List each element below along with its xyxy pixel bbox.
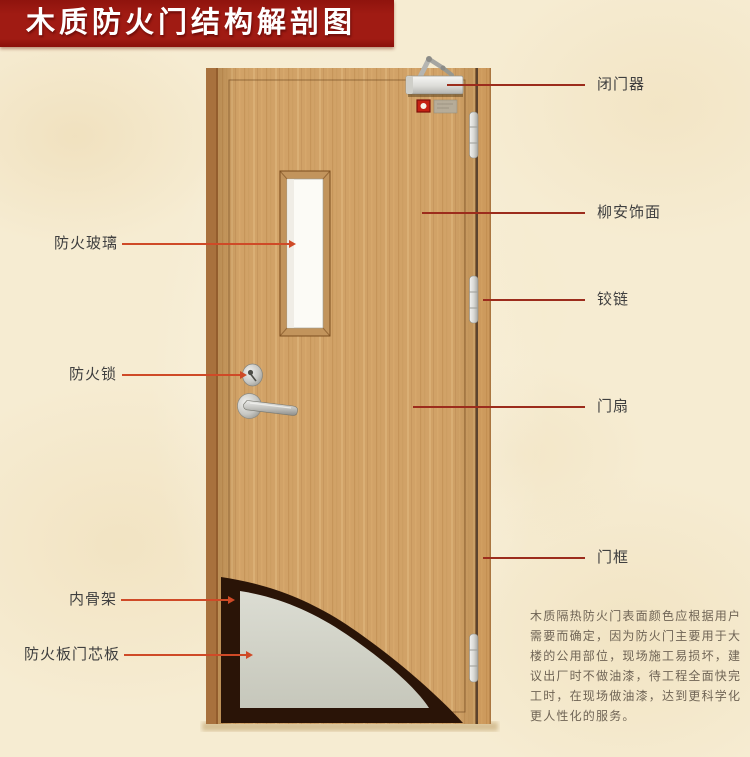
description-line: 木质隔热防火门表面颜色应根据用户 (530, 606, 742, 626)
page-title: 木质防火门结构解剖图 (0, 0, 394, 47)
callout-label-core-board: 防火板门芯板 (24, 646, 120, 664)
door-left-edge (206, 68, 218, 724)
label-plate (434, 100, 457, 113)
description-line: 需要而确定，因为防火门主要用于大 (530, 626, 742, 646)
description-paragraph: 木质隔热防火门表面颜色应根据用户 需要而确定，因为防火门主要用于大 楼的公用部位… (530, 606, 742, 726)
callout-line-veneer (422, 212, 585, 214)
callout-label-door-closer: 闭门器 (597, 76, 645, 94)
hinge-bottom (470, 634, 479, 682)
callout-line-hinge (483, 299, 585, 301)
callout-label-fire-lock: 防火锁 (69, 366, 117, 384)
callout-line-fire-glass (122, 243, 290, 245)
callout-line-door-frame (483, 557, 585, 559)
callout-label-veneer: 柳安饰面 (597, 204, 661, 222)
door-frame-strip (478, 68, 491, 724)
alarm-indicator (417, 100, 430, 112)
description-line: 工时，在现场做油漆，达到更科学化 (530, 686, 742, 706)
callout-label-inner-skeleton: 内骨架 (69, 591, 117, 609)
callout-label-fire-glass: 防火玻璃 (54, 235, 118, 253)
fire-glass-window (280, 171, 330, 336)
callout-label-hinge: 铰链 (597, 291, 629, 309)
callout-line-fire-lock (122, 374, 241, 376)
door-illustration (200, 50, 500, 740)
description-line: 更人性化的服务。 (530, 706, 742, 726)
callout-label-door-leaf: 门扇 (597, 398, 629, 416)
door-gap (476, 68, 479, 724)
callout-line-door-closer (447, 84, 585, 86)
hinge-top (470, 112, 479, 158)
callout-line-door-leaf (413, 406, 585, 408)
callout-label-door-frame: 门框 (597, 549, 629, 567)
callout-line-inner-skeleton (121, 599, 229, 601)
description-line: 楼的公用部位，现场施工易损坏，建 (530, 646, 742, 666)
callout-line-core-board (124, 654, 247, 656)
hinge-middle (470, 276, 479, 323)
title-banner: 木质防火门结构解剖图 (0, 0, 394, 47)
description-line: 议出厂时不做油漆，待工程全面快完 (530, 666, 742, 686)
